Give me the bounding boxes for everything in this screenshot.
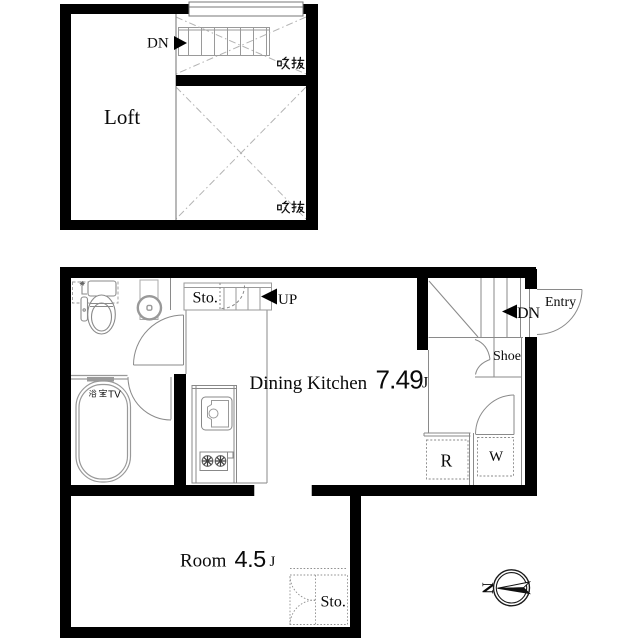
svg-text:R: R: [441, 451, 453, 471]
svg-text:W: W: [489, 449, 504, 465]
svg-text:UP: UP: [278, 292, 297, 308]
svg-text:Entry: Entry: [545, 295, 576, 310]
svg-text:N: N: [479, 583, 496, 594]
svg-text:DN: DN: [147, 36, 169, 52]
svg-text:Loft: Loft: [104, 105, 140, 129]
svg-text:Room: Room: [180, 551, 227, 572]
svg-text:Sto.: Sto.: [193, 290, 218, 307]
svg-text:TV: TV: [108, 390, 121, 401]
svg-text:J: J: [270, 554, 276, 570]
svg-text:J: J: [422, 375, 428, 392]
svg-text:Sto.: Sto.: [321, 594, 346, 611]
svg-text:Shoe: Shoe: [493, 349, 521, 364]
svg-text:DN: DN: [517, 305, 541, 322]
svg-text:7.49: 7.49: [376, 365, 424, 395]
svg-text:Dining Kitchen: Dining Kitchen: [250, 373, 368, 394]
svg-text:4.5: 4.5: [235, 546, 267, 572]
